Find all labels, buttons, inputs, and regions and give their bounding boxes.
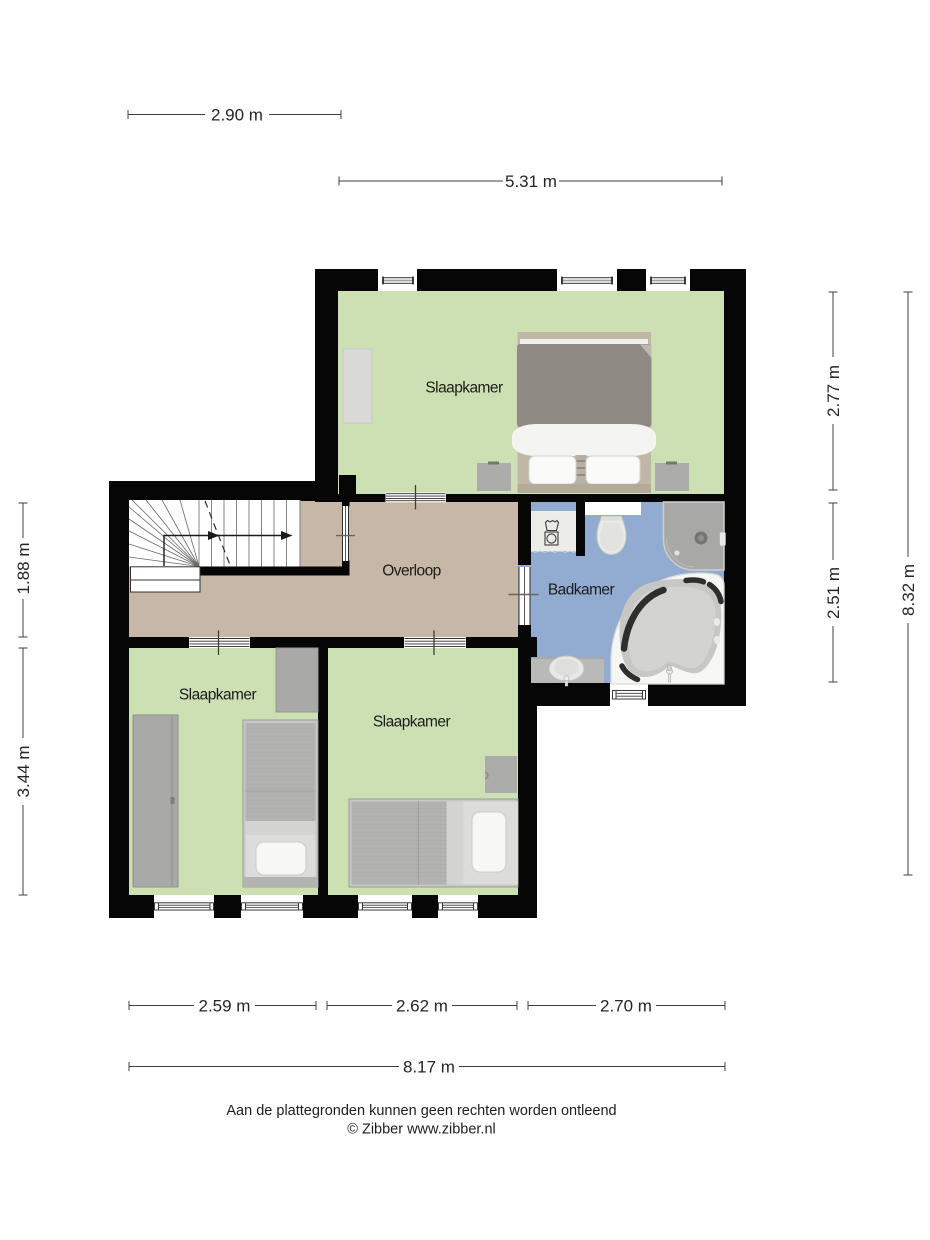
svg-text:2.77 m: 2.77 m bbox=[824, 365, 843, 417]
svg-text:2.51 m: 2.51 m bbox=[824, 567, 843, 619]
svg-text:Slaapkamer: Slaapkamer bbox=[373, 714, 451, 731]
svg-text:1.88 m: 1.88 m bbox=[14, 543, 33, 595]
svg-text:Badkamer: Badkamer bbox=[548, 582, 615, 599]
svg-text:© Zibber www.zibber.nl: © Zibber www.zibber.nl bbox=[347, 1122, 496, 1138]
svg-text:2.90 m: 2.90 m bbox=[211, 106, 263, 125]
svg-text:Slaapkamer: Slaapkamer bbox=[179, 687, 257, 704]
svg-text:5.31 m: 5.31 m bbox=[505, 172, 557, 191]
svg-text:Slaapkamer: Slaapkamer bbox=[425, 380, 503, 397]
svg-text:Overloop: Overloop bbox=[382, 563, 441, 580]
svg-text:Aan de plattegronden kunnen ge: Aan de plattegronden kunnen geen rechten… bbox=[226, 1103, 616, 1119]
svg-text:2.62 m: 2.62 m bbox=[396, 997, 448, 1016]
svg-text:2.70 m: 2.70 m bbox=[600, 997, 652, 1016]
svg-text:8.32 m: 8.32 m bbox=[899, 564, 918, 616]
svg-text:3.44 m: 3.44 m bbox=[14, 746, 33, 798]
svg-text:2.59 m: 2.59 m bbox=[199, 997, 251, 1016]
svg-text:8.17 m: 8.17 m bbox=[403, 1058, 455, 1077]
